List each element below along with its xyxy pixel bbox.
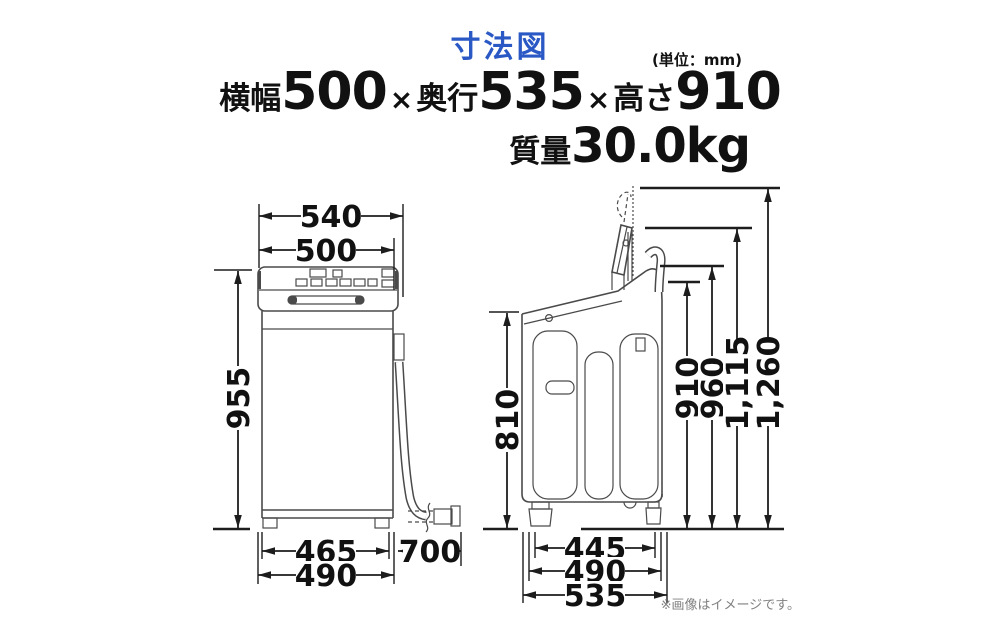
dim-height-1260: 1,260 <box>752 336 787 431</box>
image-disclaimer-note: ※画像はイメージです。 <box>661 594 800 613</box>
dim-height-1115: 1,115 <box>721 336 756 431</box>
dim-side-floor-height: 810 <box>491 389 526 452</box>
dim-side-total-depth: 535 <box>564 579 627 614</box>
dimension-diagram: 540 500 955 465 490 700 810 445 490 535 <box>0 0 1000 621</box>
lid-handle-icon <box>288 296 364 304</box>
dim-front-base-width: 490 <box>295 559 358 594</box>
drain-hose-icon <box>394 334 460 532</box>
front-view-drawing <box>258 267 460 532</box>
dim-front-body-width: 500 <box>295 234 358 269</box>
open-lid-icon <box>612 186 633 290</box>
panel-handle-icon <box>546 381 574 394</box>
dim-hose-length: 700 <box>399 535 462 570</box>
dimension-figure: 寸法図 (単位：mm) 横幅 500 × 奥行 535 × 高さ 910 質量 … <box>0 0 1000 621</box>
dimension-labels: 540 500 955 465 490 700 810 445 490 535 <box>222 200 787 614</box>
control-panel-buttons-icon <box>296 269 394 287</box>
dim-front-height: 955 <box>222 367 257 430</box>
dim-front-top-width: 540 <box>300 200 363 235</box>
panel-latch-icon <box>636 338 645 351</box>
inlet-hose-icon <box>648 251 661 292</box>
side-view-drawing <box>522 186 662 526</box>
